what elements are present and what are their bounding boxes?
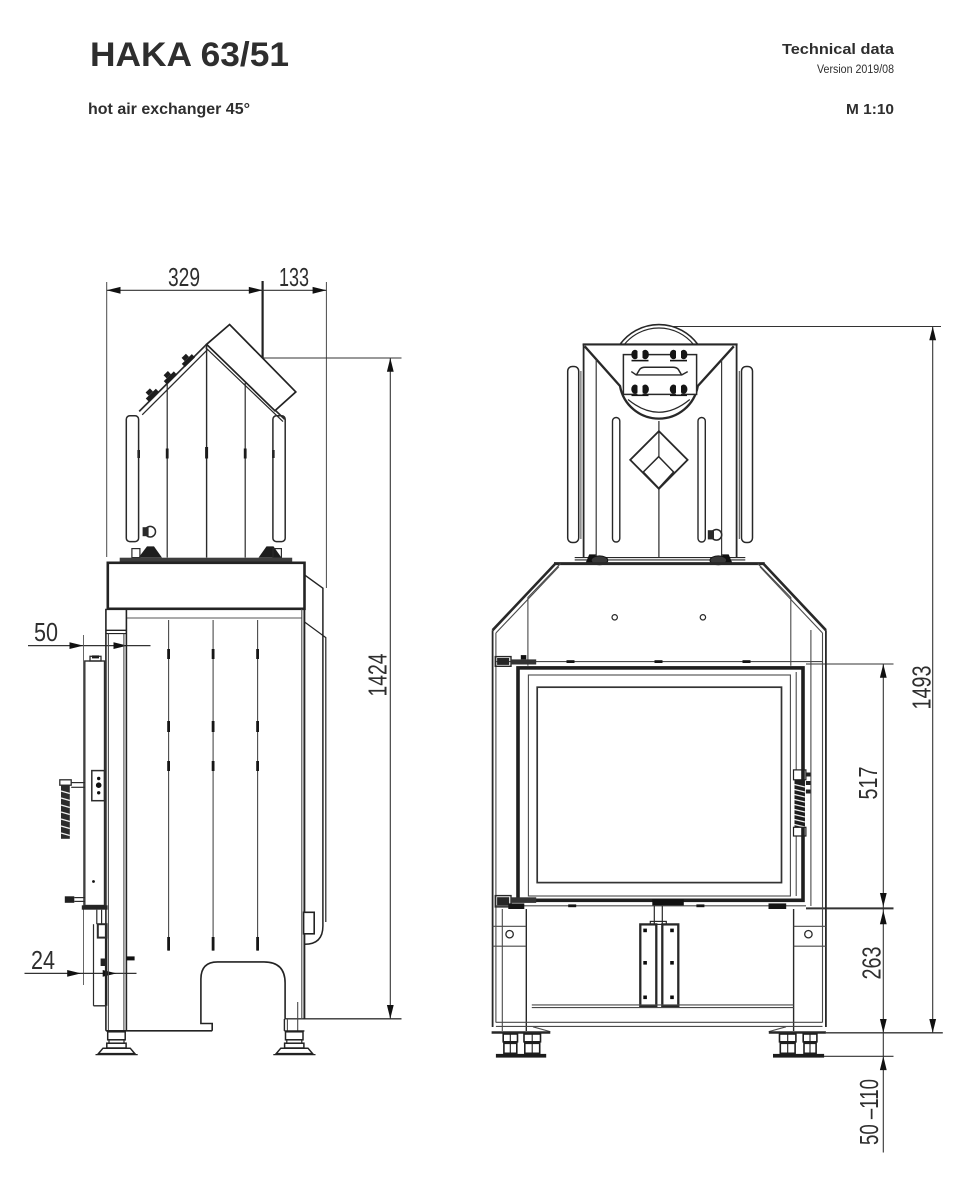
svg-text:263: 263 <box>857 947 887 980</box>
svg-text:1493: 1493 <box>907 666 937 710</box>
svg-text:329: 329 <box>168 262 200 292</box>
svg-text:Technical data: Technical data <box>782 41 895 58</box>
svg-text:50 –110: 50 –110 <box>854 1079 884 1145</box>
svg-text:133: 133 <box>279 262 309 292</box>
svg-text:50: 50 <box>34 617 58 647</box>
svg-text:24: 24 <box>31 945 55 975</box>
svg-text:Version 2019/08: Version 2019/08 <box>817 64 894 76</box>
svg-text:517: 517 <box>853 767 883 800</box>
svg-text:HAKA 63/51: HAKA 63/51 <box>90 36 289 74</box>
svg-text:hot air exchanger 45°: hot air exchanger 45° <box>88 101 250 118</box>
svg-text:1424: 1424 <box>363 654 393 697</box>
svg-text:M 1:10: M 1:10 <box>846 101 894 118</box>
